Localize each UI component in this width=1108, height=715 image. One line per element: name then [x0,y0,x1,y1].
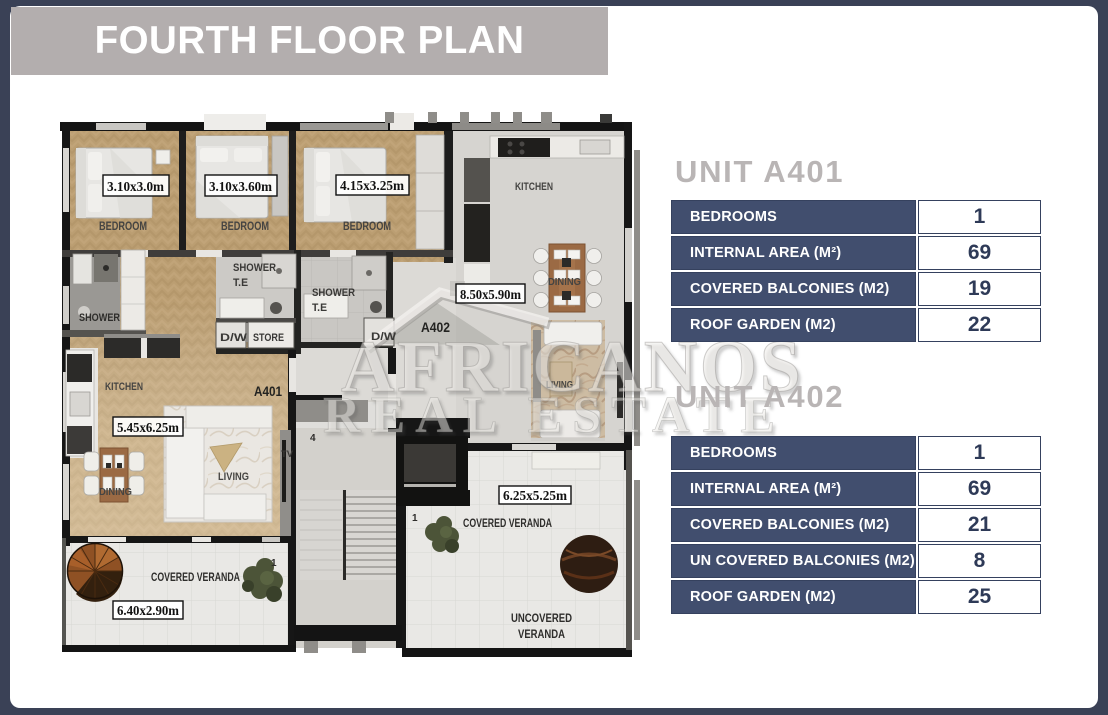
svg-text:3.10x3.60m: 3.10x3.60m [209,180,272,195]
svg-text:D/W: D/W [220,332,248,344]
svg-text:5.45x6.25m: 5.45x6.25m [117,421,179,436]
svg-text:DINING: DINING [548,277,581,288]
svg-text:4: 4 [310,433,316,444]
svg-text:COVERED VERANDA: COVERED VERANDA [151,570,240,584]
svg-text:1: 1 [271,558,277,569]
svg-text:UNCOVERED: UNCOVERED [511,611,572,625]
svg-text:8.50x5.90m: 8.50x5.90m [460,288,521,303]
svg-text:KITCHEN: KITCHEN [515,181,553,193]
svg-text:SHOWER: SHOWER [312,287,355,299]
svg-text:VERANDA: VERANDA [518,627,565,641]
svg-text:TV: TV [281,449,293,459]
svg-text:KITCHEN: KITCHEN [105,381,143,393]
svg-text:T.E: T.E [312,302,327,314]
svg-text:STORE: STORE [253,332,284,344]
svg-text:D/W: D/W [371,331,397,343]
svg-text:BEDROOM: BEDROOM [221,221,269,233]
svg-text:LIVING: LIVING [546,380,573,391]
svg-text:6.25x5.25m: 6.25x5.25m [503,489,567,504]
svg-text:1: 1 [412,513,418,524]
svg-text:T.E: T.E [233,277,248,289]
svg-text:COVERED VERANDA: COVERED VERANDA [463,516,552,530]
svg-text:SHOWER: SHOWER [233,262,276,274]
svg-text:BEDROOM: BEDROOM [343,221,391,233]
svg-text:LIVING: LIVING [218,471,249,483]
svg-text:6.40x2.90m: 6.40x2.90m [117,604,179,619]
svg-text:SHOWER: SHOWER [79,312,120,324]
svg-text:BEDROOM: BEDROOM [99,221,147,233]
svg-text:4.15x3.25m: 4.15x3.25m [340,179,404,194]
svg-text:DINING: DINING [99,487,132,498]
svg-text:A401: A401 [254,383,282,399]
svg-text:A402: A402 [421,319,450,335]
svg-text:3.10x3.0m: 3.10x3.0m [107,180,164,195]
